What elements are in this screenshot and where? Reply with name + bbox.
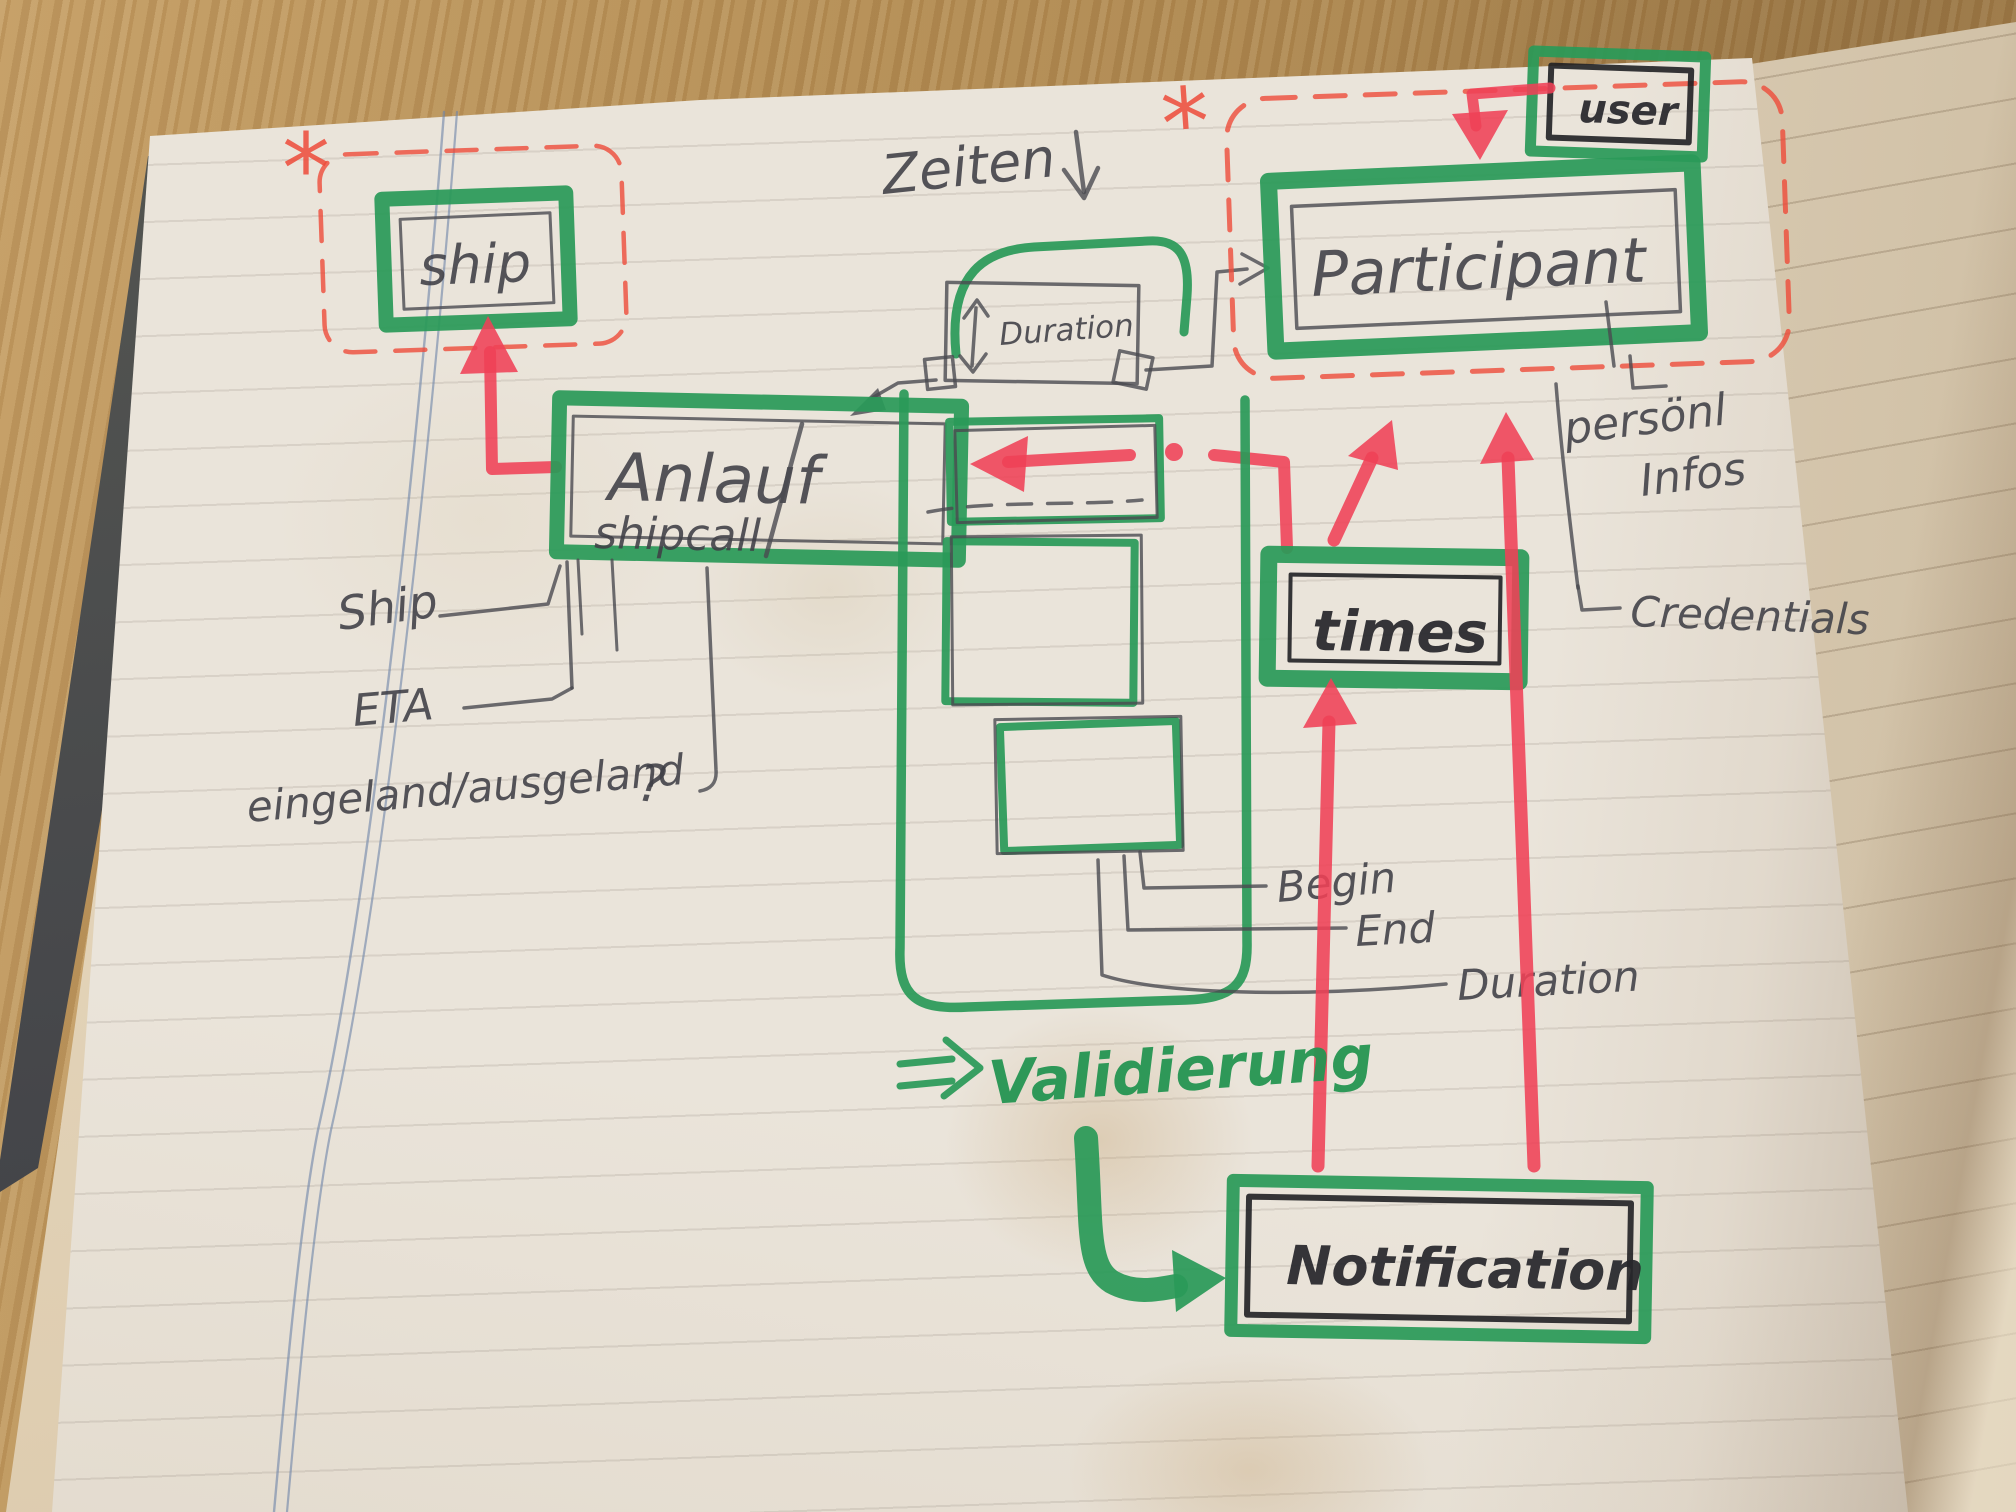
notebook-sketch-photo: * ship Zeiten Duration [0, 0, 2016, 1512]
notebook-page [0, 0, 2016, 1512]
